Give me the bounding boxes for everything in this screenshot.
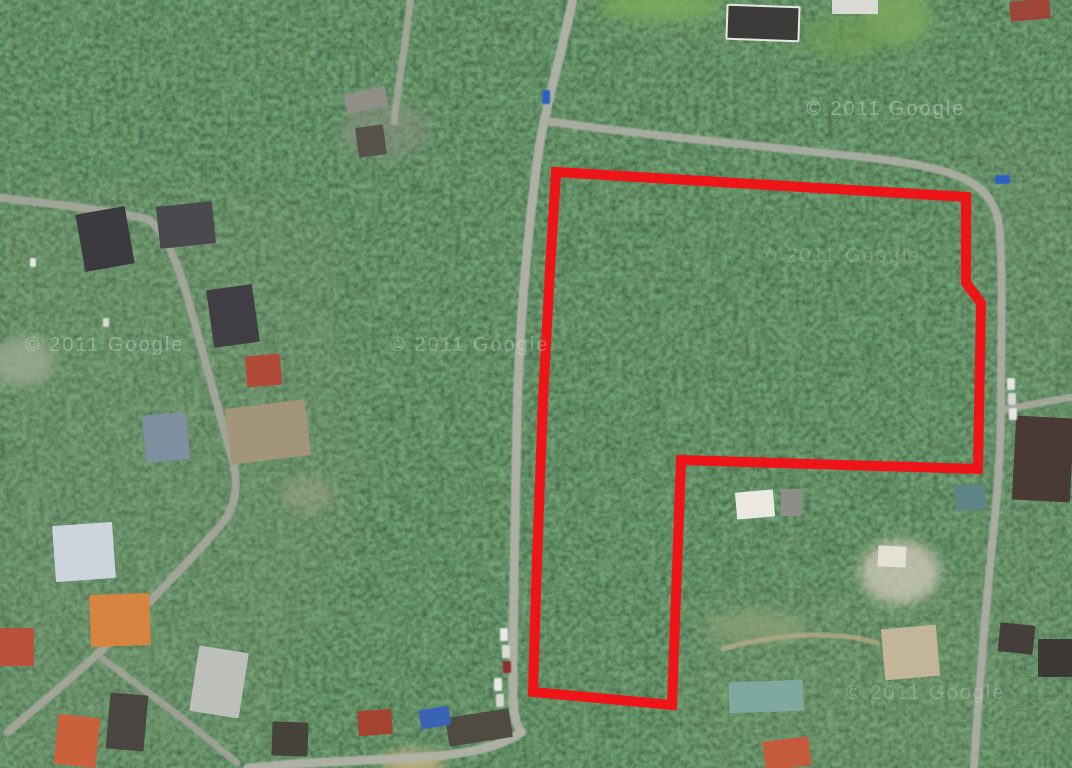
car <box>503 661 511 673</box>
building <box>225 399 311 464</box>
google-watermark: © 2011 Google <box>390 334 549 356</box>
building <box>75 206 134 272</box>
google-watermark: © 2011 Google <box>806 98 965 120</box>
car <box>30 258 36 267</box>
car <box>995 175 1010 184</box>
car <box>1008 393 1016 405</box>
building <box>998 622 1036 654</box>
building <box>245 354 283 388</box>
google-watermark: © 2011 Google <box>25 334 184 356</box>
car <box>502 645 510 658</box>
building <box>206 284 260 348</box>
car <box>103 318 109 327</box>
car <box>1009 408 1017 420</box>
building <box>881 625 940 681</box>
building <box>1009 0 1051 22</box>
building <box>735 489 775 519</box>
building <box>1012 416 1072 503</box>
google-watermark: © 2011 Google <box>846 682 1005 704</box>
building <box>1038 639 1072 677</box>
google-watermark: © 2011 Google <box>762 245 921 267</box>
building <box>355 124 387 158</box>
car <box>496 694 504 707</box>
building <box>781 489 802 516</box>
building <box>156 201 216 249</box>
building <box>189 645 249 718</box>
building <box>877 545 906 567</box>
clearing <box>803 16 887 60</box>
building <box>52 522 116 582</box>
building <box>726 5 799 41</box>
building <box>762 736 811 768</box>
car <box>542 90 550 104</box>
car <box>1007 378 1015 390</box>
building <box>142 412 190 463</box>
building <box>106 692 149 751</box>
car <box>494 678 502 691</box>
building <box>832 0 878 14</box>
satellite-canvas: © 2011 Google© 2011 Google© 2011 Google©… <box>0 0 1072 768</box>
building <box>954 484 987 511</box>
building <box>271 721 308 756</box>
building <box>357 709 393 736</box>
building <box>0 628 34 666</box>
car <box>500 628 508 641</box>
building <box>54 714 101 768</box>
clearing <box>279 477 335 513</box>
satellite-map: © 2011 Google© 2011 Google© 2011 Google©… <box>0 0 1072 768</box>
building <box>89 593 151 647</box>
building <box>728 680 803 714</box>
